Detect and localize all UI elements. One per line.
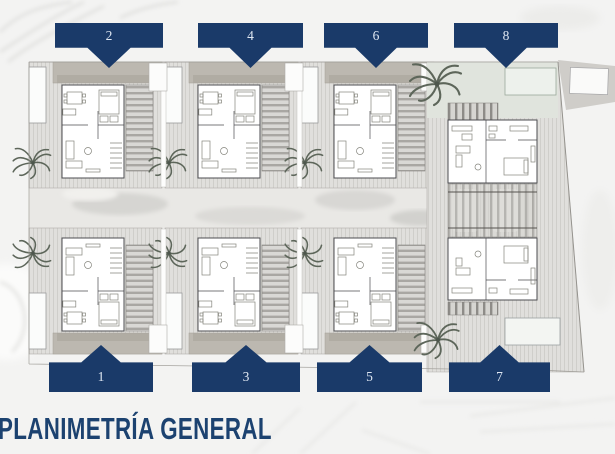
neighbor-pool: [570, 67, 609, 94]
driveway: [29, 187, 450, 228]
unit-plan-1: [13, 228, 162, 354]
unit-marker-label: 4: [198, 23, 303, 48]
carport-pergola: [448, 184, 537, 237]
unit-marker-label: 5: [317, 362, 422, 392]
unit-plan-6: [285, 62, 434, 188]
unit-marker-label: 3: [192, 362, 300, 392]
planimetry-page: 2 4 6 8 1 3 5 7 PLANIMETRÍA GENERAL: [0, 0, 615, 454]
unit-plan-5: [285, 228, 434, 354]
unit-marker-label: 1: [49, 362, 153, 392]
page-title: PLANIMETRÍA GENERAL: [0, 411, 272, 447]
house-unit-8: [448, 120, 537, 183]
unit-marker-label: 7: [449, 362, 550, 392]
pool-unit-7: [505, 318, 560, 345]
unit-marker-label: 6: [324, 23, 428, 48]
unit-marker-label: 2: [55, 23, 163, 48]
unit-plan-4: [149, 62, 298, 188]
unit-marker-label: 8: [454, 23, 558, 48]
unit-plan-2: [13, 62, 162, 188]
pool-unit-8: [505, 68, 556, 95]
right-compound: [410, 60, 615, 372]
unit-plan-3: [149, 228, 298, 354]
house-unit-7: [448, 238, 537, 300]
